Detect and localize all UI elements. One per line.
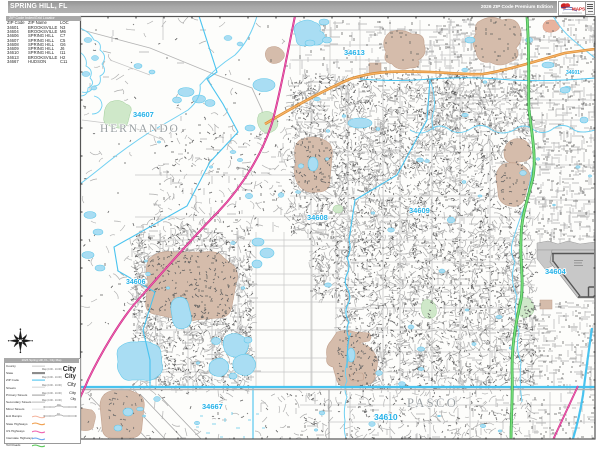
svg-text:34607: 34607 — [133, 110, 154, 119]
svg-text:34608: 34608 — [307, 213, 328, 222]
svg-text:HERNANDO: HERNANDO — [100, 123, 180, 135]
svg-text:34609: 34609 — [409, 206, 430, 215]
svg-text:34606: 34606 — [126, 279, 146, 286]
svg-text:34604: 34604 — [545, 267, 567, 276]
svg-text:34667: 34667 — [202, 402, 223, 411]
svg-text:34601: 34601 — [566, 70, 580, 76]
svg-text:PASCO: PASCO — [407, 396, 458, 410]
svg-text:Miles: Miles — [57, 404, 61, 406]
svg-text:34610: 34610 — [374, 412, 398, 422]
svg-text:MAPS: MAPS — [572, 6, 585, 11]
svg-text:34613: 34613 — [344, 48, 365, 57]
